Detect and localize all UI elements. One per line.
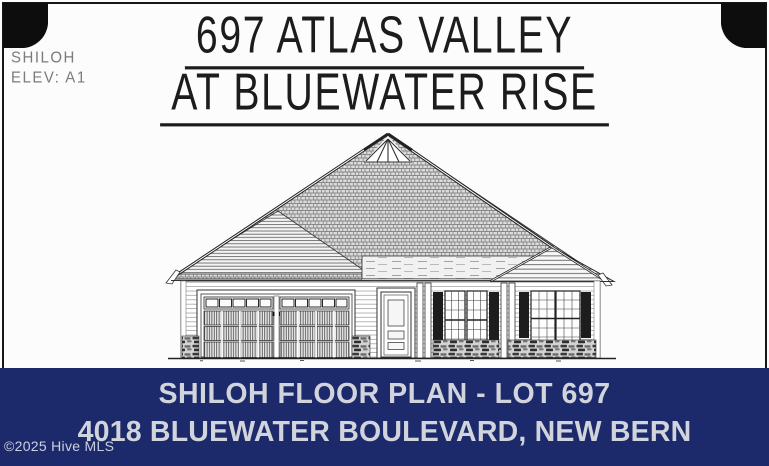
plan-label: SHILOH ELEV: A1 xyxy=(11,48,87,88)
title-line-2: AT BLUEWATER RISE xyxy=(77,66,692,126)
listing-image: SHILOH ELEV: A1 697 ATLAS VALLEY AT BLUE… xyxy=(0,0,769,466)
house-elevation-drawing xyxy=(155,128,630,372)
plan-name: SHILOH xyxy=(11,48,87,68)
banner-address: 4018 BLUEWATER BOULEVARD, NEW BERN xyxy=(0,409,769,447)
garage-door xyxy=(197,290,355,358)
corner-decoration-top-right-icon xyxy=(721,3,766,48)
elevation-code: ELEV: A1 xyxy=(11,68,87,88)
corner-decoration-top-left-icon xyxy=(3,3,48,48)
mls-watermark: ©2025 Hive MLS xyxy=(4,438,114,454)
address-banner: SHILOH FLOOR PLAN - LOT 697 4018 BLUEWAT… xyxy=(0,368,769,466)
banner-plan-lot: SHILOH FLOOR PLAN - LOT 697 xyxy=(0,368,769,409)
ground-line xyxy=(168,359,616,362)
title-line-1: 697 ATLAS VALLEY xyxy=(77,9,692,69)
front-door xyxy=(377,288,415,358)
